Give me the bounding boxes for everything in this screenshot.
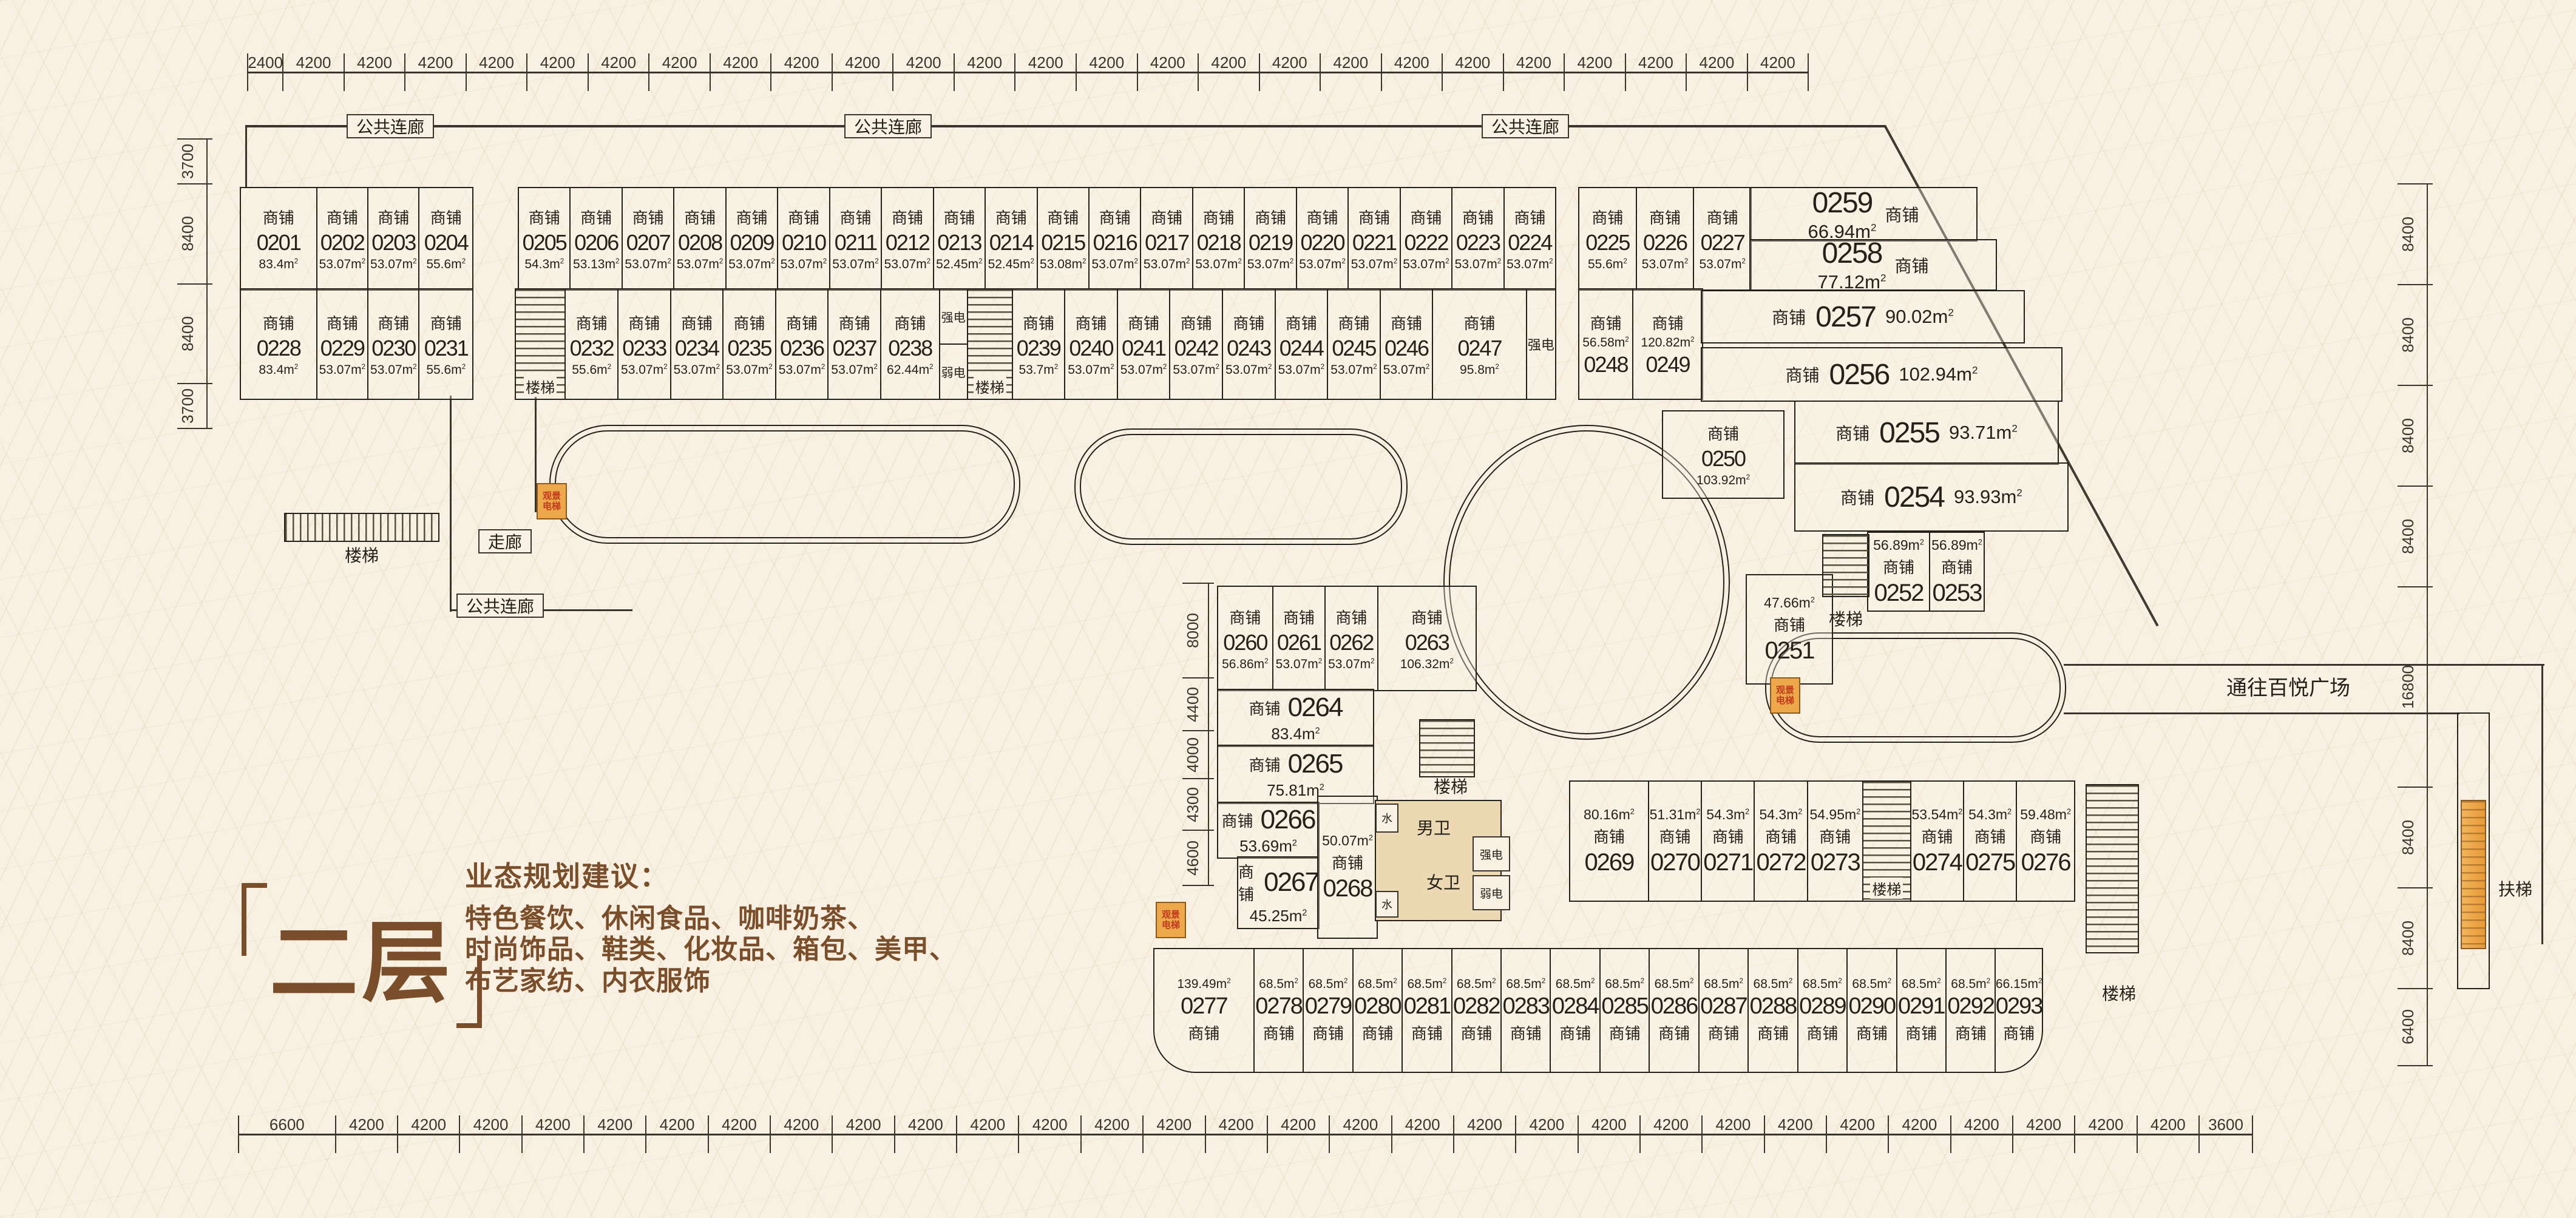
- shop-number: 0201: [257, 230, 300, 255]
- shop-type-label: 商铺: [894, 311, 926, 334]
- shop-type-label: 商铺: [1391, 311, 1422, 334]
- shop-unit-0236: 商铺023653.07m2: [775, 289, 828, 399]
- shop-unit-0264: 商铺026483.4m2: [1218, 690, 1373, 746]
- elev-view-elevator: 观景电梯: [1770, 677, 1800, 714]
- shop-unit-0249: 商铺120.82m20249: [1632, 289, 1702, 399]
- dimension-label: 4200: [1716, 1115, 1751, 1134]
- planning-line: 布艺家纺、内衣服饰: [465, 966, 957, 996]
- dimension-segment: 4200: [466, 53, 527, 91]
- shop-block-0254: 商铺025493.93m2: [1794, 462, 2069, 532]
- dimension-segment: 4200: [521, 1115, 583, 1153]
- shop-type-label: 商铺: [1075, 311, 1107, 334]
- shop-type-label: 商铺: [1233, 311, 1264, 334]
- dimension-label: 4200: [1150, 53, 1185, 72]
- shop-number: 0229: [320, 336, 364, 361]
- floorplan: 二层 业态规划建议： 特色餐饮、休闲食品、咖啡奶茶、 时尚饰品、鞋类、化妆品、箱…: [0, 0, 2576, 1218]
- shop-area: 68.5m2: [1407, 977, 1446, 992]
- shop-number: 0238: [888, 336, 932, 361]
- labelbox-public-corridor: 公共连廊: [456, 594, 544, 618]
- shop-type-label: 商铺: [1361, 1021, 1393, 1044]
- shop-type-label: 商铺: [839, 311, 870, 334]
- shop-type-label: 商铺: [1974, 825, 2006, 847]
- shop-area: 53.07m2: [832, 257, 878, 272]
- shop-type-label: 商铺: [327, 206, 358, 228]
- shop-type-label: 商铺: [1883, 555, 1914, 578]
- shop-unit-0219: 商铺021953.07m2: [1244, 188, 1295, 289]
- dimension-label: 4200: [1032, 1115, 1068, 1134]
- dimension-segment: 3700: [177, 138, 212, 183]
- shop-type-label: 商铺: [529, 206, 560, 228]
- shop-unit-0268: 50.07m2商铺0268: [1318, 797, 1377, 938]
- shop-area: 50.07m2: [1322, 833, 1373, 849]
- dimension-segment: 4200: [648, 53, 710, 91]
- dimension-segment: 4200: [1137, 53, 1198, 91]
- shop-number: 0246: [1385, 336, 1428, 361]
- dimension-segment: 4200: [583, 1115, 645, 1153]
- shop-area: 139.49m2: [1177, 977, 1230, 992]
- shop-area: 68.5m2: [1902, 977, 1941, 992]
- shop-number-area: 025877.12m2: [1818, 240, 1886, 289]
- dimension-segment: 4200: [1515, 1115, 1577, 1153]
- shop-area: 68.5m2: [1951, 977, 1990, 992]
- shop-area: 53.07m2: [1120, 363, 1167, 377]
- dimension-label: 4200: [1281, 1115, 1316, 1134]
- shop-area: 83.4m2: [259, 363, 298, 377]
- stairv: [2086, 784, 2139, 953]
- dimension-label: 4200: [2089, 1115, 2124, 1134]
- shop-number: 0281: [1404, 993, 1451, 1020]
- shop-area: 53.07m2: [1068, 363, 1114, 377]
- dimension-label: 4200: [908, 1115, 943, 1134]
- dimension-segment: 4200: [1686, 53, 1747, 91]
- shop-area: 68.5m2: [1358, 977, 1397, 992]
- stairs: 楼梯: [967, 289, 1012, 399]
- dimension-label: 8400: [2399, 519, 2418, 554]
- dimension-ruler-right: 840084008400840016800840084006400: [2398, 183, 2433, 1066]
- dimension-label: 4200: [1699, 53, 1734, 72]
- shop-type-label: 商铺: [736, 206, 768, 228]
- wall-line: [2064, 712, 2459, 714]
- dimension-segment: 4200: [1267, 1115, 1329, 1153]
- shop-area: 53.07m2: [728, 257, 774, 272]
- dimension-segment: 4200: [1564, 53, 1625, 91]
- dimension-end-tick: [2398, 1065, 2433, 1066]
- shop-area: 53.07m2: [1330, 363, 1377, 377]
- shop-unit-0238: 商铺023862.44m2: [880, 289, 939, 399]
- shop-unit-0211: 商铺021153.07m2: [829, 188, 881, 289]
- shop-number: 0277: [1181, 993, 1227, 1020]
- dimension-segment: 4200: [1453, 1115, 1515, 1153]
- shop-number: 0265: [1288, 749, 1343, 779]
- shop-unit-0282: 68.5m20282商铺: [1451, 949, 1500, 1072]
- floor-title-block: 二层: [242, 883, 482, 1028]
- dimension-label: 2400: [248, 53, 283, 72]
- shop-number: 0208: [678, 230, 722, 255]
- shop-unit-0224: 商铺022453.07m2: [1503, 188, 1555, 289]
- shop-unit-0273: 54.95m2商铺0273: [1807, 782, 1863, 901]
- dimension-segment: 16800: [2398, 586, 2433, 787]
- shop-number: 0283: [1502, 993, 1549, 1020]
- dimension-label: 4200: [411, 1115, 446, 1134]
- shop-type-label: 商铺: [1188, 1021, 1219, 1044]
- dimension-label: 4200: [784, 1115, 819, 1134]
- shop-unit-0207: 商铺020753.07m2: [622, 188, 673, 289]
- dimension-label: 4200: [1089, 53, 1124, 72]
- stairs: 楼梯: [1862, 782, 1910, 901]
- shop-number: 0216: [1093, 230, 1137, 255]
- shop-unit-0254: 商铺025493.93m2: [1795, 464, 2067, 530]
- dimension-label: 4200: [846, 1115, 881, 1134]
- shop-type-label: 商铺: [576, 311, 608, 334]
- dimension-segment: 4200: [710, 53, 771, 91]
- shop-unit-0205: 商铺020554.3m2: [519, 188, 569, 289]
- shop-unit-0217: 商铺021753.07m2: [1140, 188, 1191, 289]
- shop-unit-0206: 商铺020653.13m2: [569, 188, 621, 289]
- shop-unit-0261: 商铺026153.07m2: [1272, 587, 1324, 690]
- dimension-segment: 4200: [1018, 1115, 1080, 1153]
- dimension-segment: 4200: [2074, 1115, 2136, 1153]
- shop-type-label: 商铺: [628, 311, 660, 334]
- shop-number: 0206: [574, 230, 618, 255]
- dimension-label: 4200: [357, 53, 392, 72]
- shop-type-label: 商铺: [1514, 206, 1545, 228]
- shop-area: 56.89m2: [1931, 537, 1982, 553]
- floorplan-stage: 二层 业态规划建议： 特色餐饮、休闲食品、咖啡奶茶、 时尚饰品、鞋类、化妆品、箱…: [0, 0, 2576, 1218]
- dimension-segment: 4200: [404, 53, 466, 91]
- shop-unit-0232: 商铺023255.6m2: [564, 289, 617, 399]
- dimension-label: 8400: [178, 316, 197, 351]
- shop-unit-0214: 商铺021452.45m2: [985, 188, 1036, 289]
- shop-unit-0237: 商铺023753.07m2: [827, 289, 880, 399]
- shop-type-label: 商铺: [378, 206, 409, 228]
- shop-unit-0256: 商铺0256102.94m2: [1702, 348, 2061, 401]
- shop-number: 0293: [1996, 993, 2042, 1020]
- shop-type-label: 商铺: [1658, 1021, 1690, 1044]
- shop-unit-0223: 商铺022353.07m2: [1451, 188, 1503, 289]
- shop-type-label: 商铺: [632, 206, 664, 228]
- shop-number: 0255: [1879, 416, 1939, 450]
- dimension-label: 4200: [1343, 1115, 1378, 1134]
- dimension-segment: 4200: [1329, 1115, 1391, 1153]
- label-mens-wc: 男卫: [1409, 818, 1458, 836]
- stairs: 楼梯: [516, 289, 564, 399]
- shop-unit-0251: 47.66m2商铺0251: [1747, 575, 1832, 683]
- shop-area: 52.45m2: [988, 257, 1034, 272]
- shop-type-label: 商铺: [1128, 311, 1159, 334]
- shop-unit-0293: 66.15m20293商铺: [1995, 949, 2041, 1072]
- shop-type-label: 商铺: [1659, 825, 1690, 847]
- shop-area: 55.6m2: [426, 363, 466, 377]
- frame: [2457, 712, 2490, 989]
- shop-type-label: 商铺: [1411, 1021, 1443, 1044]
- elev-view-elevator: 观景电梯: [1156, 902, 1186, 938]
- shop-unit-0215: 商铺021553.08m2: [1037, 188, 1088, 289]
- dimension-label: 4200: [1760, 53, 1795, 72]
- shop-number: 0244: [1280, 336, 1323, 361]
- shop-unit-0257: 商铺025790.02m2: [1702, 291, 2024, 342]
- shop-unit-0231: 商铺023155.6m2: [418, 289, 472, 399]
- shop-area: 68.5m2: [1259, 977, 1298, 992]
- floor-title: 二层: [242, 883, 482, 1028]
- shop-number: 0209: [730, 230, 773, 255]
- dimension-segment: 8400: [2398, 887, 2433, 988]
- dimension-segment: 4200: [894, 1115, 956, 1153]
- shop-number: 0274: [1913, 849, 1962, 876]
- shop-unit-0287: 68.5m20287商铺: [1698, 949, 1747, 1072]
- shop-type-label: 商铺: [1335, 606, 1367, 628]
- shop-type-label: 商铺: [1955, 1021, 1987, 1044]
- shop-type-label: 商铺: [1312, 1021, 1344, 1044]
- shop-area: 51.31m2: [1650, 807, 1701, 823]
- shop-unit-0269: 80.16m2商铺0269: [1570, 782, 1648, 901]
- dimension-label: 4200: [1394, 53, 1429, 72]
- shop-block-0205-0224: 商铺020554.3m2商铺020653.13m2商铺020753.07m2商铺…: [518, 187, 1556, 291]
- dimension-label: 4200: [967, 53, 1002, 72]
- shop-area: 53.07m2: [677, 257, 723, 272]
- shop-area: 53.07m2: [1383, 363, 1429, 377]
- dimension-segment: 4200: [1442, 53, 1503, 91]
- planning-note: 业态规划建议： 特色餐饮、休闲食品、咖啡奶茶、 时尚饰品、鞋类、化妆品、箱包、美…: [465, 854, 957, 996]
- dimension-segment: 8400: [177, 283, 212, 384]
- shop-area: 68.5m2: [1556, 977, 1595, 992]
- shop-unit-0284: 68.5m20284商铺: [1550, 949, 1599, 1072]
- dimension-end-tick: [2252, 1115, 2253, 1153]
- dimension-label: 8000: [1184, 613, 1202, 648]
- dimension-label: 4200: [723, 53, 758, 72]
- shop-type-label: 商铺: [1411, 606, 1443, 628]
- label-womens-wc: 女卫: [1419, 873, 1468, 891]
- shop-area: 53.07m2: [779, 363, 825, 377]
- dimension-segment: 4200: [1320, 53, 1381, 91]
- shop-number: 0280: [1354, 993, 1401, 1020]
- shop-number: 0207: [626, 230, 670, 255]
- shop-block-0252-0253: 56.89m2商铺025256.89m2商铺0253: [1867, 532, 1985, 612]
- shop-block-0259: 025966.94m2商铺: [1749, 187, 1978, 242]
- shop-block-0258: 025877.12m2商铺: [1749, 239, 1997, 291]
- shop-number: 0254: [1884, 481, 1944, 514]
- dimension-segment: 4200: [832, 1115, 893, 1153]
- shop-type-label: 商铺: [1332, 851, 1363, 873]
- shop-type-label: 商铺: [1023, 311, 1054, 334]
- shop-number: 0219: [1249, 230, 1292, 255]
- dimension-segment: 4200: [1391, 1115, 1453, 1153]
- shop-area: 80.16m2: [1584, 807, 1635, 823]
- shop-number: 0228: [257, 336, 300, 361]
- shop-type-label: 商铺: [1338, 311, 1369, 334]
- dimension-label: 8400: [2399, 317, 2418, 353]
- shop-area: 56.58m2: [1582, 336, 1629, 350]
- shop-number: 0205: [523, 230, 566, 255]
- shop-number: 0259: [1812, 188, 1873, 220]
- dimension-label: 4200: [1156, 1115, 1191, 1134]
- shop-number: 0214: [989, 230, 1033, 255]
- wall-line: [450, 396, 452, 612]
- shop-type-label: 商铺: [1885, 202, 1919, 226]
- shop-type-label: 商铺: [786, 311, 818, 334]
- dimension-segment: 3600: [2198, 1115, 2252, 1153]
- shop-type-label: 商铺: [1652, 311, 1683, 334]
- dimension-label: 4200: [1333, 53, 1368, 72]
- shop-block-0228-0231: 商铺022883.4m2商铺022953.07m2商铺023053.07m2商铺…: [240, 288, 473, 400]
- shop-number: 0242: [1174, 336, 1218, 361]
- shop-unit-0235: 商铺023553.07m2: [722, 289, 775, 399]
- shop-type-label: 商铺: [1151, 206, 1182, 228]
- shop-type-label: 商铺: [1099, 206, 1131, 228]
- shop-unit-0247: 商铺024795.8m2: [1432, 289, 1525, 399]
- shop-unit-0289: 68.5m20289商铺: [1797, 949, 1846, 1072]
- dimension-segment: 4200: [892, 53, 954, 91]
- shop-number: 0271: [1703, 849, 1752, 876]
- dimension-segment: 6400: [2398, 988, 2433, 1065]
- shop-number: 0249: [1646, 352, 1689, 377]
- shop-number: 0290: [1849, 993, 1896, 1020]
- dimension-segment: 4200: [1503, 53, 1564, 91]
- shop-type-label: 商铺: [2030, 825, 2061, 847]
- shop-area: 53.07m2: [1403, 257, 1449, 272]
- dimension-label: 4200: [1211, 53, 1246, 72]
- shop-area: 102.94m2: [1899, 364, 1978, 385]
- shop-number: 0258: [1822, 240, 1882, 270]
- shop-block-0248-0249: 商铺56.58m20248商铺120.82m20249: [1578, 288, 1703, 400]
- shop-number: 0221: [1352, 230, 1396, 255]
- shop-number: 0282: [1453, 993, 1500, 1020]
- label-stairs: 楼梯: [333, 545, 391, 564]
- shop-area: 62.44m2: [887, 363, 933, 377]
- dimension-label: 4200: [601, 53, 636, 72]
- shop-number: 0245: [1332, 336, 1375, 361]
- shop-number: 0243: [1227, 336, 1270, 361]
- shop-number: 0212: [886, 230, 929, 255]
- shop-number: 0287: [1700, 993, 1747, 1020]
- label-stairs: 楼梯: [1818, 609, 1873, 628]
- dimension-segment: 4200: [1625, 53, 1686, 91]
- dimension-segment: 4200: [956, 1115, 1018, 1153]
- shop-unit-0276: 59.48m2商铺0276: [2016, 782, 2074, 901]
- shop-unit-0250: 商铺0250103.92m2: [1663, 411, 1783, 498]
- shop-type-label: 商铺: [1765, 825, 1797, 847]
- shop-area: 53.07m2: [1455, 257, 1501, 272]
- shop-area: 77.12m2: [1818, 271, 1886, 289]
- label-stairs: 楼梯: [2092, 983, 2146, 1003]
- shop-area: 68.5m2: [1852, 977, 1891, 992]
- dimension-label: 4200: [1902, 1115, 1937, 1134]
- shop-unit-0252: 56.89m2商铺0252: [1868, 533, 1929, 611]
- shop-area: 53.07m2: [1276, 657, 1322, 672]
- shop-unit-0213: 商铺021352.45m2: [933, 188, 985, 289]
- labelbox-strong-power: 强电: [1473, 836, 1510, 871]
- shop-type-label: 商铺: [430, 311, 462, 334]
- planning-heading: 业态规划建议：: [465, 854, 957, 895]
- stairv: [1419, 719, 1475, 777]
- shop-number: 0226: [1643, 230, 1687, 255]
- shop-area: 53.07m2: [1144, 257, 1190, 272]
- shop-type-label: 商铺: [2003, 1021, 2035, 1044]
- shop-number: 0232: [570, 336, 614, 361]
- dimension-segment: 6600: [238, 1115, 335, 1153]
- shop-unit-0265: 商铺026575.81m2: [1218, 746, 1373, 803]
- shop-area: 106.32m2: [1400, 657, 1454, 672]
- dimension-label: 4200: [1529, 1115, 1564, 1134]
- shop-number: 0276: [2021, 849, 2070, 876]
- weak-power-label: 弱电: [940, 345, 967, 399]
- dimension-label: 4200: [1638, 53, 1673, 72]
- stairs-label: 楼梯: [524, 376, 557, 397]
- dimension-label: 4200: [1405, 1115, 1440, 1134]
- shop-unit-0274: 53.54m2商铺0274: [1910, 782, 1963, 901]
- shop-type-label: 商铺: [1856, 1021, 1888, 1044]
- shop-number: 0289: [1799, 993, 1846, 1020]
- shop-unit-0281: 68.5m20281商铺: [1402, 949, 1451, 1072]
- shop-unit-0280: 68.5m20280商铺: [1352, 949, 1402, 1072]
- shop-unit-0234: 商铺023453.07m2: [670, 289, 723, 399]
- dimension-segment: 4300: [1182, 778, 1214, 830]
- corridor-loop: [549, 425, 1020, 544]
- shop-number: 0253: [1933, 580, 1982, 607]
- shop-area: 53.07m2: [674, 363, 720, 377]
- dimension-segment: 4200: [1198, 53, 1259, 91]
- shop-area: 93.93m2: [1954, 486, 2022, 508]
- shop-number: 0263: [1405, 630, 1449, 655]
- shop-unit-0228: 商铺022883.4m2: [241, 289, 316, 399]
- shop-type-label: 商铺: [1462, 206, 1494, 228]
- shop-number: 0240: [1069, 336, 1113, 361]
- shop-unit-0286: 68.5m20286商铺: [1649, 949, 1698, 1072]
- shop-type-label: 商铺: [1238, 860, 1256, 905]
- shop-area: 55.6m2: [1588, 257, 1627, 272]
- dimension-segment: 4200: [1142, 1115, 1204, 1153]
- shop-area: 53.07m2: [726, 363, 772, 377]
- dimension-segment: 8400: [2398, 284, 2433, 385]
- shop-number: 0286: [1651, 993, 1698, 1020]
- dimension-label: 6600: [269, 1115, 305, 1134]
- shop-area: 68.5m2: [1803, 977, 1842, 992]
- shop-type-label: 商铺: [788, 206, 819, 228]
- shop-unit-0271: 54.3m2商铺0271: [1701, 782, 1754, 901]
- shop-area: 53.54m2: [1912, 807, 1963, 823]
- shop-unit-0292: 68.5m20292商铺: [1945, 949, 1995, 1072]
- shop-unit-0229: 商铺022953.07m2: [316, 289, 367, 399]
- shop-number: 0217: [1145, 230, 1188, 255]
- shop-number: 0233: [622, 336, 666, 361]
- shop-type-label: 商铺: [995, 206, 1027, 228]
- shop-type-label: 商铺: [1249, 697, 1281, 719]
- dimension-ruler-bottom: 6600420042004200420042004200420042004200…: [238, 1115, 2253, 1153]
- shop-area: 53.07m2: [370, 257, 416, 272]
- dimension-label: 16800: [2399, 665, 2418, 709]
- dimension-label: 4600: [1184, 841, 1202, 876]
- dimension-segment: 4200: [526, 53, 588, 91]
- shop-label-number: 商铺0267: [1238, 860, 1318, 905]
- shop-unit-0246: 商铺024653.07m2: [1380, 289, 1432, 399]
- stairs-label: 楼梯: [1870, 878, 1903, 899]
- dimension-label: 4200: [722, 1115, 757, 1134]
- dimension-segment: 4200: [1259, 53, 1320, 91]
- shop-area: 56.89m2: [1873, 537, 1924, 553]
- dimension-label: 4300: [1184, 787, 1202, 822]
- shop-area: 90.02m2: [1885, 306, 1954, 328]
- label-escalator: 扶梯: [2490, 879, 2541, 898]
- shop-unit-0230: 商铺023053.07m2: [367, 289, 418, 399]
- planning-line: 特色餐饮、休闲食品、咖啡奶茶、: [465, 903, 957, 934]
- shop-type-label: 商铺: [1286, 311, 1317, 334]
- shop-type-label: 商铺: [1707, 206, 1738, 228]
- shop-area: 95.8m2: [1460, 363, 1499, 377]
- shop-label-number: 商铺0264: [1249, 692, 1343, 723]
- dimension-label: 4200: [479, 53, 514, 72]
- dimension-segment: 4200: [1950, 1115, 2012, 1153]
- shop-unit-0243: 商铺024353.07m2: [1222, 289, 1275, 399]
- shop-area: 54.3m2: [524, 257, 564, 272]
